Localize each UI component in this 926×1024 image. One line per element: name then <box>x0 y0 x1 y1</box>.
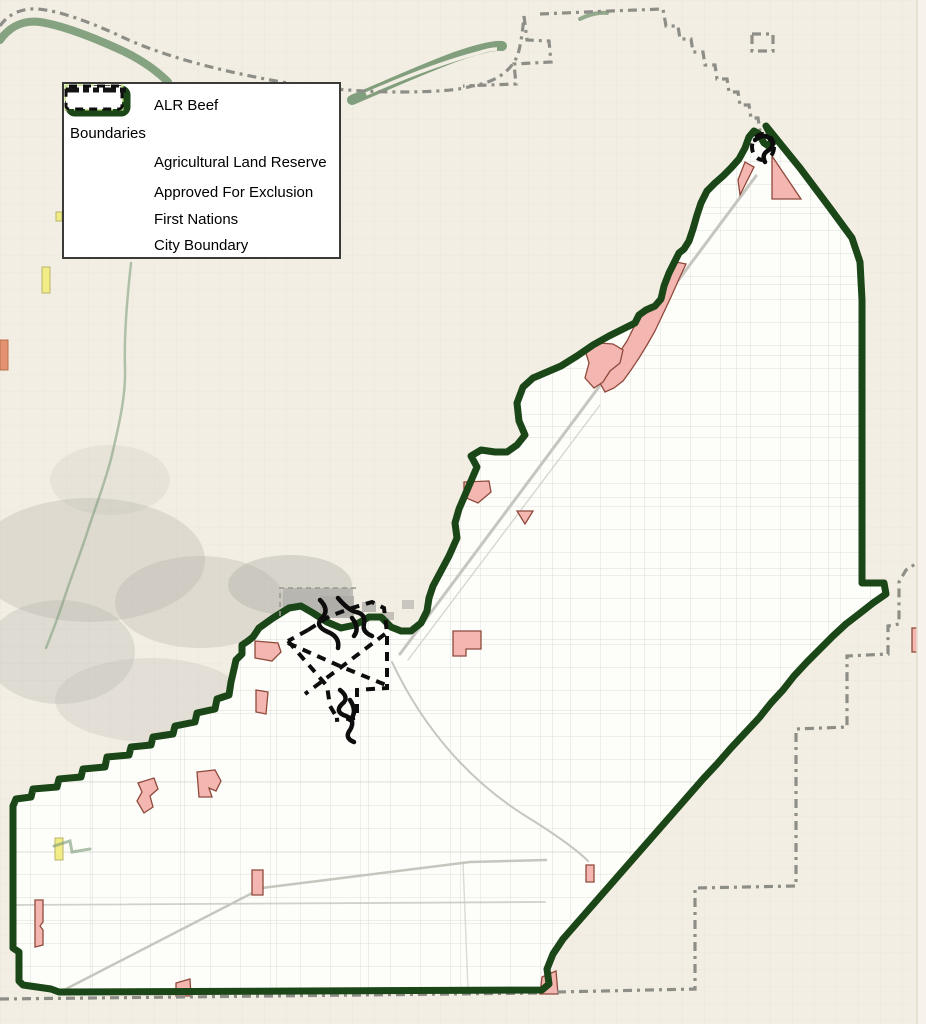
legend-label: First Nations <box>154 211 238 228</box>
legend-header-boundaries: Boundaries <box>64 122 339 145</box>
yellow-parcel <box>55 838 63 860</box>
legend-item-first-nations: First Nations <box>64 206 339 233</box>
legend-label: ALR Beef <box>154 97 218 114</box>
alr-beef-parcel <box>586 865 594 882</box>
orange-parcel <box>0 340 8 370</box>
legend-item-city-boundary: City Boundary <box>64 233 339 257</box>
legend-item-agricultural-land-reserve: Agricultural Land Reserve <box>64 145 339 179</box>
legend-item-approved-for-exclusion: Approved For Exclusion <box>64 179 339 206</box>
alr-beef-parcel <box>256 690 268 714</box>
legend-label: Agricultural Land Reserve <box>154 154 327 171</box>
alr-beef-parcel <box>35 900 43 947</box>
legend-label: Approved For Exclusion <box>154 184 313 201</box>
alr-beef-parcel <box>252 870 263 895</box>
map-canvas[interactable]: ALR Beef Boundaries Agricultural Land Re… <box>0 0 926 1024</box>
legend: ALR Beef Boundaries Agricultural Land Re… <box>62 82 341 259</box>
page-edge <box>917 0 926 1024</box>
yellow-parcel <box>42 267 50 293</box>
legend-label: City Boundary <box>154 237 248 254</box>
